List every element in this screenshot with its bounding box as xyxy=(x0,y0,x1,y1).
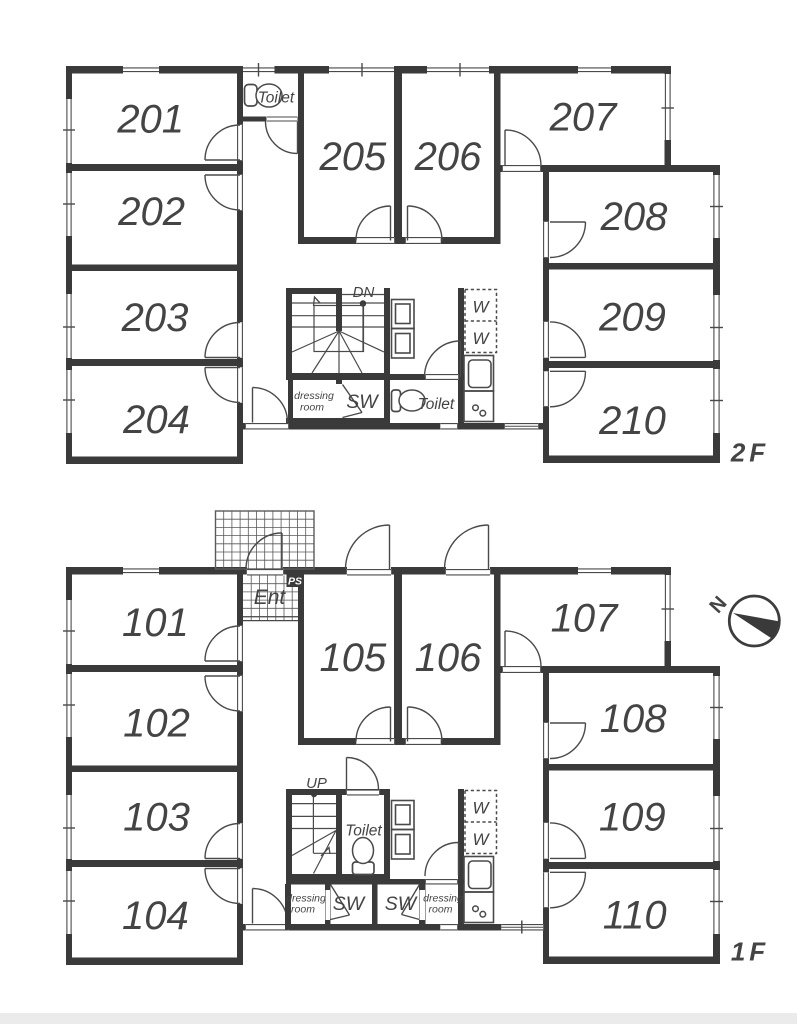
svg-text:204: 204 xyxy=(122,398,190,442)
svg-text:SW: SW xyxy=(333,893,366,915)
svg-text:UP: UP xyxy=(306,775,327,792)
svg-text:105: 105 xyxy=(320,636,387,680)
svg-text:102: 102 xyxy=(123,701,190,745)
svg-text:1F: 1F xyxy=(731,936,769,966)
svg-text:101: 101 xyxy=(122,601,189,645)
svg-text:Ent: Ent xyxy=(254,586,287,609)
svg-text:203: 203 xyxy=(121,296,189,340)
svg-text:202: 202 xyxy=(117,190,185,234)
svg-text:2F: 2F xyxy=(730,437,769,467)
svg-text:Toilet: Toilet xyxy=(345,823,382,840)
svg-text:206: 206 xyxy=(414,135,482,179)
svg-text:room: room xyxy=(429,903,453,915)
svg-text:207: 207 xyxy=(549,95,618,139)
svg-text:107: 107 xyxy=(551,596,619,640)
svg-text:208: 208 xyxy=(600,195,668,239)
svg-text:DN: DN xyxy=(353,284,375,301)
svg-text:201: 201 xyxy=(116,98,184,142)
svg-text:104: 104 xyxy=(122,894,189,938)
svg-text:Toilet: Toilet xyxy=(418,396,455,413)
svg-text:103: 103 xyxy=(123,796,190,840)
svg-text:Toilet: Toilet xyxy=(258,90,295,107)
svg-text:room: room xyxy=(291,903,315,915)
svg-text:W: W xyxy=(472,799,490,818)
svg-text:PS: PS xyxy=(288,575,302,587)
svg-text:109: 109 xyxy=(599,795,666,839)
svg-text:W: W xyxy=(472,298,490,317)
svg-text:106: 106 xyxy=(415,636,482,680)
svg-text:205: 205 xyxy=(319,135,387,179)
svg-text:W: W xyxy=(472,830,490,849)
svg-text:110: 110 xyxy=(603,894,667,938)
svg-text:108: 108 xyxy=(600,697,667,741)
svg-text:room: room xyxy=(300,401,324,413)
svg-text:SW: SW xyxy=(346,391,379,413)
svg-text:W: W xyxy=(472,329,490,348)
svg-text:209: 209 xyxy=(598,296,666,340)
svg-text:SW: SW xyxy=(385,893,418,915)
svg-text:210: 210 xyxy=(598,399,666,443)
svg-text:dressing: dressing xyxy=(294,390,334,402)
